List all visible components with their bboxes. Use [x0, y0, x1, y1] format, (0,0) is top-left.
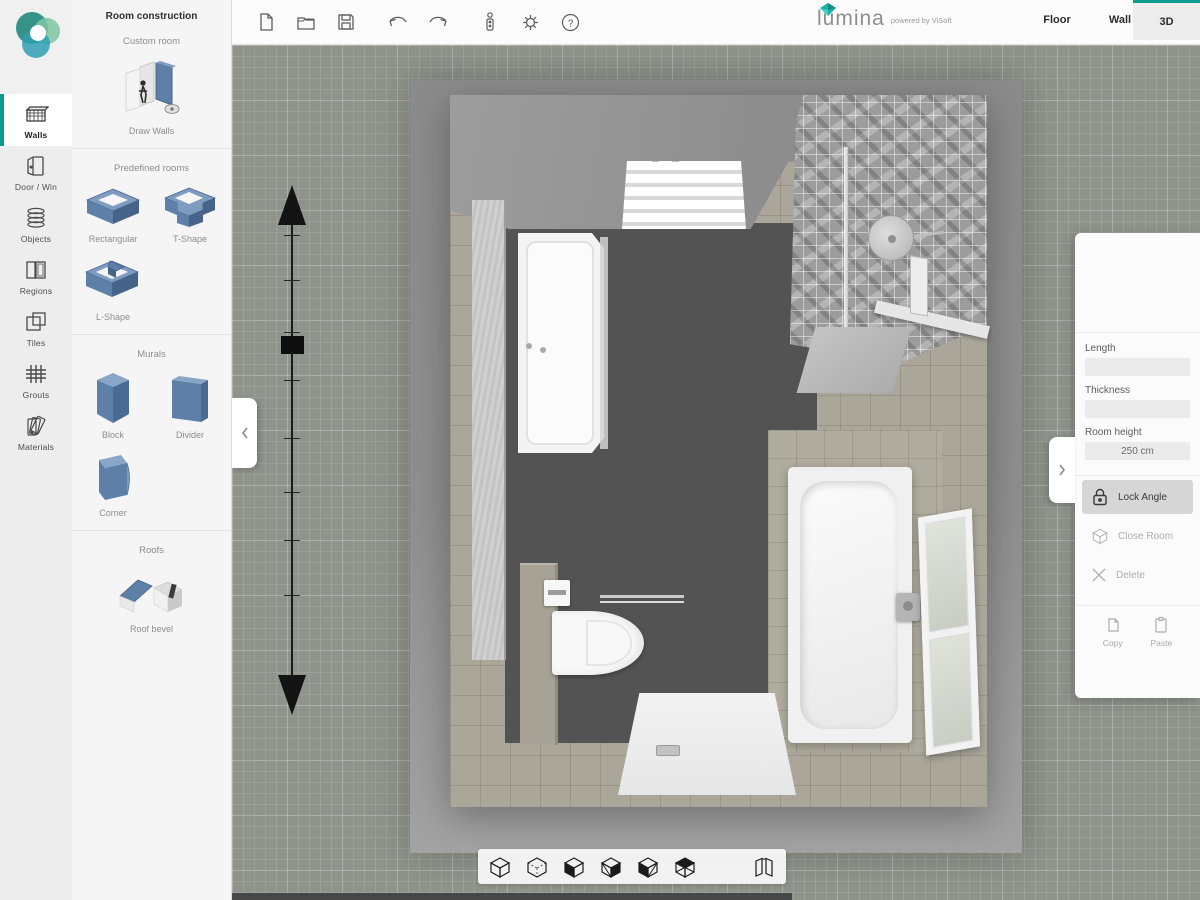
file-group: [254, 10, 358, 34]
window-pane: [925, 517, 969, 632]
sidebar-item-regions[interactable]: Regions: [0, 250, 72, 302]
panel-divider: [72, 530, 231, 531]
thickness-input[interactable]: [1085, 400, 1190, 418]
svg-text:?: ?: [567, 18, 573, 29]
divider-thumbnail: [164, 368, 216, 428]
radiator[interactable]: [622, 161, 746, 229]
view-mode-toolbar: [478, 849, 786, 884]
canvas-bottom-strip: [232, 893, 792, 900]
room-height-input[interactable]: 250 cm: [1085, 442, 1190, 460]
save-button[interactable]: [334, 10, 358, 34]
brand-name: lumina: [817, 4, 885, 34]
toilet-paper-holder[interactable]: [544, 580, 570, 606]
materials-icon: [23, 413, 49, 439]
item-label-roof-bevel: Roof bevel: [72, 624, 231, 634]
panel-title: Room construction: [72, 0, 231, 22]
view-cube-front-button[interactable]: [562, 854, 586, 880]
section-label-custom-room: Custom room: [72, 36, 231, 47]
view-cube-top-button[interactable]: [673, 854, 697, 880]
lock-angle-label: Lock Angle: [1118, 492, 1167, 503]
sidebar-item-door-win[interactable]: Door / Win: [0, 146, 72, 198]
shower-head[interactable]: [868, 215, 914, 261]
panel-item-rectangular[interactable]: Rectangular: [77, 182, 149, 244]
slider-tick: [284, 235, 300, 236]
tools-group: ?: [478, 10, 582, 34]
length-input[interactable]: [1085, 358, 1190, 376]
floor-drain: [656, 745, 680, 756]
dimension-fields: Length Thickness Room height 250 cm: [1075, 333, 1200, 475]
top-toolbar: ? lumina powered by ViSoft Floor Wall 3D: [232, 0, 1200, 45]
tool-sidebar: Walls Door / Win Objects: [0, 0, 72, 900]
panel-divider: [72, 334, 231, 335]
settings-button[interactable]: [518, 10, 542, 34]
tab-3d[interactable]: 3D: [1133, 0, 1200, 40]
slider-shaft: [291, 221, 293, 679]
view-cube-left-button[interactable]: [636, 854, 660, 880]
west-wall-panel[interactable]: [472, 200, 506, 660]
sidebar-item-label: Grouts: [23, 390, 50, 400]
lumina-logo-icon: [6, 6, 66, 68]
view-cube-outline-button[interactable]: [525, 854, 549, 880]
slider-tick: [284, 492, 300, 493]
undo-button[interactable]: [386, 10, 410, 34]
close-room-label: Close Room: [1118, 531, 1173, 542]
roof-bevel-thumbnail: [114, 564, 190, 622]
window[interactable]: [918, 508, 980, 755]
app-logo[interactable]: [0, 0, 72, 94]
item-label-divider: Divider: [154, 430, 226, 440]
new-file-button[interactable]: [254, 10, 278, 34]
lock-icon: [1091, 487, 1109, 507]
close-room-cube-icon: [1091, 527, 1109, 545]
panel-collapse-tab[interactable]: [232, 398, 257, 468]
door-icon: [23, 153, 49, 179]
vertical-measure-slider: [262, 185, 322, 715]
redo-button[interactable]: [426, 10, 450, 34]
room-height-field: Room height 250 cm: [1085, 427, 1190, 460]
help-button[interactable]: ?: [558, 10, 582, 34]
copy-button[interactable]: Copy: [1103, 615, 1123, 648]
rectangular-thumbnail: [82, 182, 144, 232]
delete-label: Delete: [1116, 570, 1145, 581]
slider-arrow-down[interactable]: [278, 675, 306, 715]
sidebar-item-tiles[interactable]: Tiles: [0, 302, 72, 354]
corner-thumbnail: [90, 448, 136, 506]
section-label-predefined-rooms: Predefined rooms: [72, 163, 231, 174]
entrance-floor[interactable]: [618, 693, 796, 795]
shower-enclosure[interactable]: [518, 233, 604, 453]
slider-arrow-up[interactable]: [278, 185, 306, 225]
panel-item-roof-bevel[interactable]: [72, 564, 231, 622]
panel-item-block[interactable]: Block: [77, 368, 149, 440]
paste-label: Paste: [1150, 638, 1172, 648]
l-shape-thumbnail: [80, 252, 146, 310]
tab-floor[interactable]: Floor: [1027, 0, 1087, 40]
sidebar-item-materials[interactable]: Materials: [0, 406, 72, 458]
chevron-left-icon: [240, 426, 250, 440]
grab-bar[interactable]: [600, 595, 684, 603]
window-pane: [929, 632, 973, 747]
sidebar-item-objects[interactable]: Objects: [0, 198, 72, 250]
slider-handle[interactable]: [281, 336, 304, 354]
app-window: Walls Door / Win Objects: [0, 0, 1200, 900]
section-label-murals: Murals: [72, 349, 231, 360]
panel-divider: [72, 148, 231, 149]
shower-door-handle: [540, 347, 546, 353]
clipboard-actions: Copy Paste: [1075, 605, 1200, 658]
sidebar-item-walls[interactable]: Walls: [0, 94, 72, 146]
copy-label: Copy: [1103, 638, 1123, 648]
usb-device-button[interactable]: [478, 10, 502, 34]
room-height-label: Room height: [1085, 427, 1190, 438]
wall-icon: [23, 101, 49, 127]
brand: lumina powered by ViSoft: [817, 4, 952, 34]
shower-niche: [910, 255, 928, 316]
chevron-right-icon: [1057, 463, 1067, 477]
sidebar-item-label: Objects: [21, 234, 51, 244]
section-label-roofs: Roofs: [72, 545, 231, 556]
delete-x-icon: [1091, 567, 1107, 583]
panel-item-divider-mural[interactable]: Divider: [154, 368, 226, 440]
thickness-field: Thickness: [1085, 385, 1190, 418]
grouts-icon: [23, 361, 49, 387]
item-label-rectangular: Rectangular: [77, 234, 149, 244]
thickness-label: Thickness: [1085, 385, 1190, 396]
powered-by: powered by ViSoft: [891, 16, 952, 34]
objects-icon: [23, 205, 49, 231]
item-label-l-shape: L-Shape: [77, 312, 149, 322]
shower-glass-panel: [600, 237, 608, 449]
sidebar-item-label: Tiles: [27, 338, 46, 348]
copy-icon: [1104, 615, 1122, 635]
slider-tick: [284, 332, 300, 333]
room-3d-view[interactable]: [450, 95, 987, 807]
wall-properties-panel: Length Thickness Room height 250 cm Lock…: [1075, 233, 1200, 698]
bathtub[interactable]: [788, 467, 912, 743]
shower-pole: [844, 147, 848, 339]
item-label-t-shape: T-Shape: [154, 234, 226, 244]
paste-icon: [1152, 615, 1170, 635]
bathtub-faucet: [896, 593, 920, 621]
history-group: [386, 10, 450, 34]
tiles-icon: [23, 309, 49, 335]
sidebar-item-label: Regions: [20, 286, 53, 296]
panel-item-corner[interactable]: Corner: [77, 448, 149, 518]
unfold-walls-button[interactable]: [752, 854, 776, 880]
view-cube-right-button[interactable]: [599, 854, 623, 880]
block-thumbnail: [90, 368, 136, 428]
close-room-button[interactable]: Close Room: [1082, 519, 1193, 553]
panel-item-l-shape[interactable]: L-Shape: [77, 252, 149, 322]
length-label: Length: [1085, 343, 1190, 354]
sidebar-item-label: Materials: [18, 442, 54, 452]
lock-angle-button[interactable]: Lock Angle: [1082, 480, 1193, 514]
paste-button[interactable]: Paste: [1150, 615, 1172, 648]
draw-walls-thumbnail: [110, 53, 194, 119]
slider-tick: [284, 280, 300, 281]
slider-tick: [284, 380, 300, 381]
view-cube-wireframe-button[interactable]: [488, 854, 512, 880]
panel-item-draw-walls[interactable]: [110, 53, 194, 124]
sidebar-item-grouts[interactable]: Grouts: [0, 354, 72, 406]
item-label-draw-walls: Draw Walls: [72, 126, 231, 136]
wall-actions: Lock Angle Close Room Delete: [1075, 475, 1200, 605]
sidebar-item-label: Door / Win: [15, 182, 57, 192]
shower-door-handle: [526, 343, 532, 349]
slider-tick: [284, 540, 300, 541]
shower-floor[interactable]: [797, 327, 912, 393]
properties-panel-toggle-tab[interactable]: [1049, 437, 1075, 503]
regions-icon: [23, 257, 49, 283]
length-field: Length: [1085, 343, 1190, 376]
item-label-block: Block: [77, 430, 149, 440]
delete-button[interactable]: Delete: [1082, 558, 1193, 592]
slider-tick: [284, 595, 300, 596]
t-shape-thumbnail: [159, 182, 221, 232]
room-construction-panel: Room construction Custom room Draw Walls…: [72, 0, 232, 900]
bathtub-basin: [800, 481, 898, 729]
shower-tray: [526, 241, 594, 445]
panel-item-t-shape[interactable]: T-Shape: [154, 182, 226, 244]
item-label-corner: Corner: [77, 508, 149, 518]
sidebar-item-label: Walls: [25, 130, 48, 140]
slider-tick: [284, 438, 300, 439]
properties-panel-header-area: [1075, 233, 1200, 333]
open-folder-button[interactable]: [294, 10, 318, 34]
